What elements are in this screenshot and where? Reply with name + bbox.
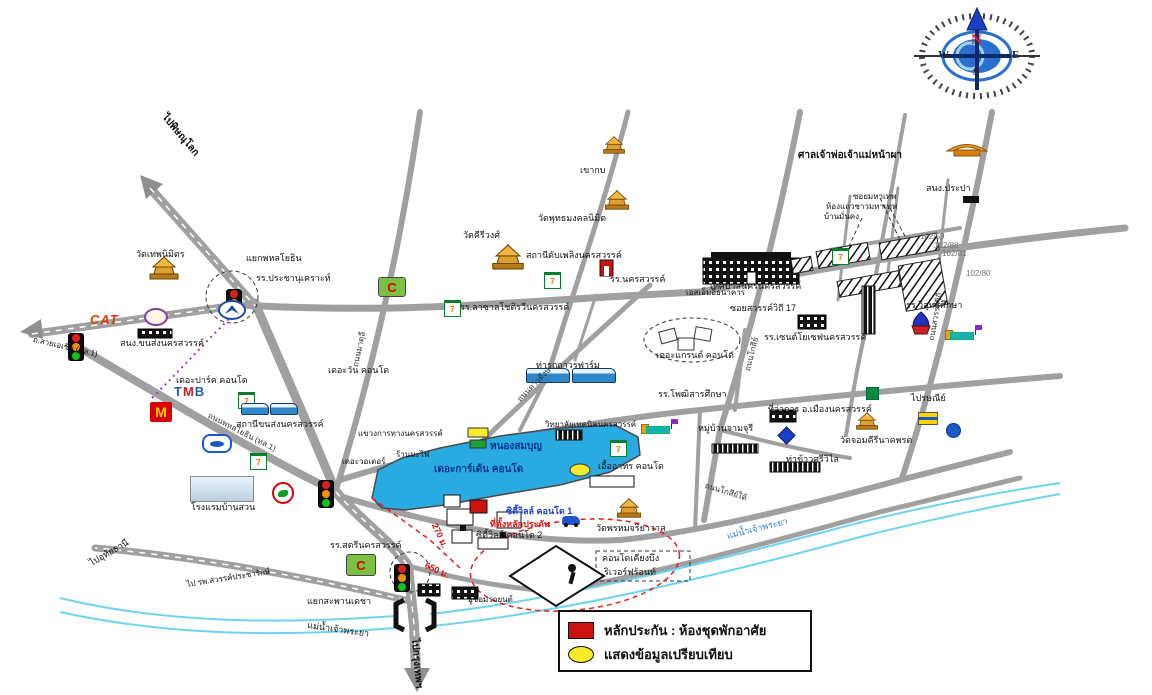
compass-west-label: W <box>938 49 949 61</box>
tmb-bank-logo: TMB <box>174 384 205 399</box>
label-wat-thepnimit: วัดเทพนิมิตร <box>136 250 185 260</box>
legend-collateral-row: หลักประกัน : ห้องชุดพักอาศัย <box>568 618 802 642</box>
label-jamjuree: หมู่บ้านจามจุรี <box>698 424 753 434</box>
car-dealer-oval-logo <box>202 434 232 453</box>
collateral-swatch <box>568 622 594 639</box>
label-wat-kiriwong: วัดคีรีวงศ์ <box>463 231 500 241</box>
mcdonalds-icon: M <box>150 402 172 422</box>
label-school-ns: รร.นครสวรรค์ <box>610 275 665 285</box>
post-office-icon <box>918 412 938 425</box>
compass-east-label: E <box>1012 49 1019 61</box>
label-site: ที่ตั้งหลักประกัน <box>490 520 550 530</box>
school-icon <box>646 420 676 434</box>
label-baan-suan: โรงแรมบ้านสวน <box>191 503 255 513</box>
seven-eleven-icon: 7 <box>544 272 561 289</box>
label-prapa: สนง.ประปา <box>926 184 971 194</box>
label-kieng1: คอนโดเคียงบึง <box>602 554 659 564</box>
label-lasalle: รร.ลาซาลโชติรวีนครสวรรค์ <box>460 303 569 313</box>
legend-collateral-label: หลักประกัน : ห้องชุดพักอาศัย <box>604 620 766 641</box>
label-the-water: เดอะวอเตอร์ <box>342 458 385 467</box>
label-rowhouse: ห้องแถวชาวมหาเทพ <box>826 203 897 212</box>
label-technic: วิทยาลัยเทคนิคนครสวรรค์ <box>545 421 636 430</box>
seven-eleven-icon: 7 <box>610 440 627 457</box>
compass-south-label: S <box>973 66 979 78</box>
label-bus-terminal: สถานีขนส่งนครสวรรค์ <box>236 420 324 430</box>
label-stjoseph: รร.เซนต์โยเซฟนครสวรรค์ <box>764 333 866 343</box>
label-nong-sombun: หนองสมบุญ <box>490 441 542 452</box>
label-uea-athon: เอื้ออาทร คอนโด <box>598 462 664 472</box>
cat-telecom-logo: CAT <box>90 312 119 327</box>
label-sanchao: ศาลเจ้าพ่อเจ้าแม่หน้าผา <box>798 150 902 161</box>
label-soi-mahathep: ซอยมหาเทพ <box>853 193 896 202</box>
collateral-site-marker <box>470 500 487 513</box>
label-cityville1: ซิตี้วิลล์ คอนโด 1 <box>506 507 572 517</box>
telecom-oval-logo <box>144 308 168 326</box>
label-garage: อู่ซ่อมรถยนต์ <box>468 596 513 605</box>
label-garden-condo: เดอะการ์เด้น คอนโด <box>434 464 523 475</box>
label-grand-condo: เดอะแกรนด์ คอนโด <box>656 351 734 361</box>
label-satri: รร.สตรีนครสวรรค์ <box>330 541 402 551</box>
label-no3: 102/81 <box>942 250 966 259</box>
legend-comparison-row: แสดงข้อมูลเปรียบเทียบ <box>568 642 802 666</box>
legend: หลักประกัน : ห้องชุดพักอาศัย แสดงข้อมูลเ… <box>558 610 812 672</box>
seven-eleven-icon: 7 <box>250 453 267 470</box>
label-yaek-decha: แยกสะพานเดชา <box>304 596 374 608</box>
bird-brand-logo <box>272 482 294 504</box>
bank-green-icon <box>866 387 879 400</box>
label-khaokob: เขากบ <box>580 166 605 176</box>
label-sme-bank: เอสเอ็มอีธนาคาร <box>686 289 745 298</box>
map-canvas: N W E S 777777CCMCATTMB ไปพิษณุโลกถ.สายเ… <box>0 0 1152 695</box>
traffic-light-icon <box>394 564 410 592</box>
label-cityville2: ซิตี้วิลล์ คอนโด 2 <box>476 531 542 541</box>
label-the-park: เดอะปาร์ค คอนโด <box>176 376 248 386</box>
mazda-dealer-logo <box>218 300 246 320</box>
legend-comparison-label: แสดงข้อมูลเปรียบเทียบ <box>604 644 733 665</box>
temple-icon <box>493 242 523 269</box>
comparison-marker <box>570 464 590 476</box>
label-yaek-phahon: แยกพหลโยธิน <box>246 254 302 264</box>
bank-blue-icon <box>946 423 961 438</box>
temple-icon <box>617 496 640 517</box>
label-baan-mankong: บ้านมั่นคง <box>824 213 859 222</box>
bus-icon <box>241 403 269 415</box>
compass-north-label: N <box>971 32 982 49</box>
temple-icon <box>605 188 628 209</box>
compass-rose <box>914 8 1040 96</box>
label-photisarn: รร.โพฒิสารศึกษา <box>658 390 727 400</box>
label-ban-mafai: ร้านมะไฟ <box>396 451 430 460</box>
seven-eleven-icon: 7 <box>832 248 849 265</box>
traffic-light-icon <box>318 480 334 508</box>
school-icon <box>950 326 980 340</box>
label-songkan: สนง.ขนส่งนครสวรรค์ <box>120 339 204 349</box>
mosque-icon <box>912 312 930 334</box>
comparison-swatch <box>568 646 594 663</box>
riverfront-site-outline <box>510 546 604 606</box>
waterworks-icon <box>963 196 979 203</box>
label-wat-putta: วัดพุทธมงคลนิมิต <box>538 214 606 224</box>
big-c-icon: C <box>378 277 406 297</box>
label-post: ไปรษณีย์ <box>911 394 946 404</box>
seven-eleven-icon: 7 <box>444 300 461 317</box>
label-soi17: ซอยสวรรค์วิถี 17 <box>730 304 796 314</box>
label-fire-station: สถานีดับเพลิงนครสวรรค์ <box>526 251 622 261</box>
big-c-icon: C <box>346 554 376 576</box>
car-icon <box>562 516 580 525</box>
hotel-photo-icon <box>190 476 254 502</box>
label-wat-jomkiri: วัดจอมคีรีนาคพรต <box>840 436 912 446</box>
label-no4: 102/80 <box>966 270 990 279</box>
bus-icon <box>270 403 298 415</box>
label-takaw: ท่าข้าวศรีวิไล <box>786 455 839 465</box>
label-amphoe: ที่ว่าการ อ.เมืองนครสวรรค์ <box>768 405 872 415</box>
label-kieng2: ริเวอร์ฟร้อนท์ <box>604 568 656 578</box>
label-kwang-thang: แขวงการทางนครสวรรค์ <box>358 430 443 439</box>
label-prachanukroh: รร.ประชานุเคราะห์ <box>256 274 331 284</box>
label-wat-phrom: วัดพรหมจริยาวาส <box>596 524 666 534</box>
